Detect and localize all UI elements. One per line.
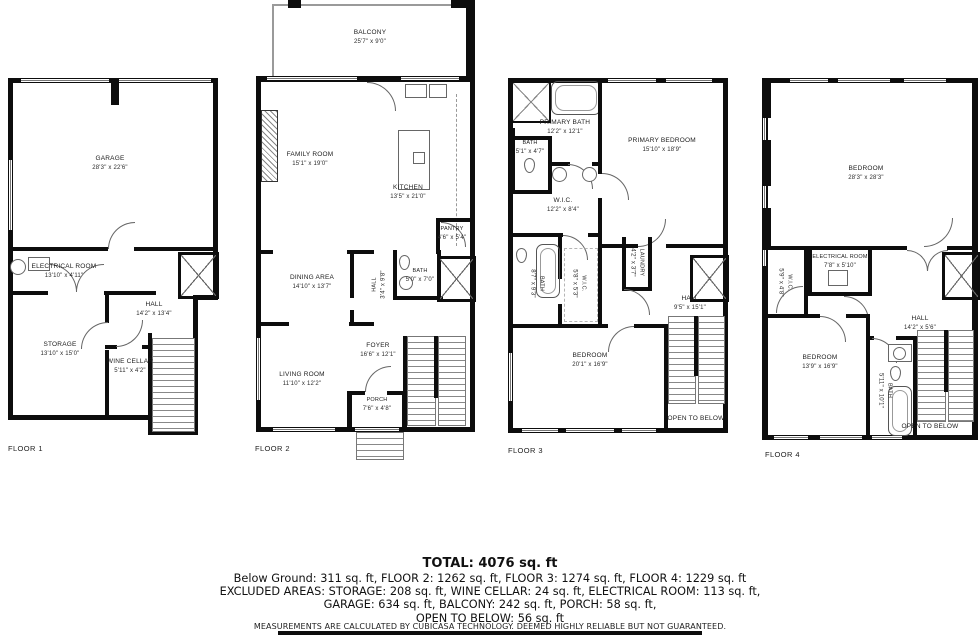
wall <box>762 78 771 118</box>
summary-line: EXCLUDED AREAS: STORAGE: 208 sq. ft, WIN… <box>0 585 980 598</box>
room-dims: 15'1" x 19'0" <box>292 161 328 167</box>
room-name: BALCONY <box>354 29 386 36</box>
kitchen-counter <box>456 94 470 246</box>
equipment-box-icon <box>828 270 848 286</box>
wall <box>598 244 602 328</box>
room-name: FOYER <box>366 342 389 349</box>
stairs-icon <box>698 316 725 404</box>
room-name: HALL <box>911 315 928 322</box>
open-to-below-label: OPEN TO BELOW <box>880 422 980 431</box>
bathtub-icon <box>551 81 601 115</box>
floor1-label: FLOOR 1 <box>8 444 43 453</box>
stairs-icon <box>917 330 946 422</box>
wall <box>466 0 475 78</box>
room-label-primary-bath: PRIMARY BATH12'2" x 12'1" <box>515 118 615 137</box>
wall <box>470 76 475 432</box>
room-dims: 13'10" x 4'11" <box>45 273 84 279</box>
room-name: ELECTRICAL ROOM <box>32 263 97 270</box>
window <box>622 428 656 433</box>
room-dims: 11'10" x 12'2" <box>283 381 322 387</box>
room-dims: 25'7" x 9'0" <box>354 39 386 45</box>
room-name: DINING AREA <box>290 274 334 281</box>
wall <box>808 314 820 318</box>
wall <box>762 140 771 186</box>
room-name: PRIMARY BATH <box>540 119 590 126</box>
disclaimer-text: MEASUREMENTS ARE CALCULATED BY CUBICASA … <box>0 622 980 631</box>
wall <box>134 247 218 251</box>
room-label-electrical-room: ELECTRICAL ROOM13'10" x 4'11" <box>14 262 114 281</box>
room-dims: 4'2" x 3'7" <box>630 248 636 276</box>
room-dims: 5'0" x 7'0" <box>406 277 434 283</box>
room-name: W.I.C. <box>554 197 573 204</box>
room-name: BATH <box>538 276 544 291</box>
wall <box>508 233 563 237</box>
floor2-label: FLOOR 2 <box>255 444 290 453</box>
elevator-icon <box>178 252 219 299</box>
wall <box>762 246 907 250</box>
window <box>608 78 656 83</box>
room-dims: 28'3" x 22'6" <box>92 165 128 171</box>
room-name: PANTRY <box>440 226 463 232</box>
window <box>762 186 768 208</box>
window <box>508 353 513 401</box>
window <box>119 78 211 83</box>
window <box>904 78 946 83</box>
door-icon <box>924 218 953 247</box>
room-dims: 13'10" x 15'0" <box>40 351 79 357</box>
room-name: BEDROOM <box>849 165 884 172</box>
room-dims: 14'2" x 5'6" <box>904 325 936 331</box>
room-name: GARAGE <box>95 155 124 162</box>
stairs-icon <box>438 336 466 426</box>
toilet-icon <box>516 248 527 263</box>
wall <box>393 296 443 300</box>
room-name: HALL <box>681 295 698 302</box>
room-dims: 7'6" x 4'8" <box>363 406 391 412</box>
room-dims: 13'9" x 16'9" <box>802 364 838 370</box>
door-icon <box>820 316 846 342</box>
room-dims: 13'5" x 21'0" <box>390 194 426 200</box>
wall <box>947 246 978 250</box>
window <box>256 338 261 400</box>
wall <box>8 291 48 295</box>
room-label-foyer: FOYER16'6" x 12'1" <box>328 341 428 360</box>
room-name: WINE CELLAR <box>107 358 153 365</box>
fireplace-hatch-icon <box>261 110 278 182</box>
room-label-primary-bedroom: PRIMARY BEDROOM15'10" x 18'9" <box>612 136 712 155</box>
wall <box>634 324 668 328</box>
window <box>401 76 459 82</box>
window <box>820 435 862 440</box>
room-dims: 9'5" x 15'1" <box>674 305 706 311</box>
room-dims: 7'8" x 5'10" <box>824 263 856 269</box>
floor1-panel: GARAGE28'3" x 22'6" ELECTRICAL ROOM13'10… <box>8 78 218 435</box>
door-icon <box>365 366 391 392</box>
room-label-kitchen: KITCHEN13'5" x 21'0" <box>358 183 458 202</box>
wall <box>350 310 354 326</box>
stairs-icon <box>948 330 974 422</box>
sink-icon <box>582 167 597 182</box>
room-label-wic-upper: W.I.C.12'2" x 8'4" <box>513 196 613 215</box>
wall <box>104 291 156 295</box>
window <box>762 118 768 140</box>
bottom-bar <box>278 631 702 635</box>
window <box>838 78 890 83</box>
wall <box>762 208 771 246</box>
room-name: HALL <box>145 301 162 308</box>
room-name: STORAGE <box>43 341 76 348</box>
elevator-icon <box>942 252 980 300</box>
room-label-wic: W.I.C.5'9" x 4'8" <box>776 252 793 312</box>
window <box>522 428 558 433</box>
window <box>273 427 335 432</box>
window <box>267 76 357 82</box>
wall <box>8 415 152 420</box>
room-label-bedroom: BEDROOM20'1" x 16'9" <box>540 351 640 370</box>
room-label-bath: BATH5'11" x 10'1" <box>876 360 893 420</box>
room-name: BEDROOM <box>573 352 608 359</box>
floor4-label: FLOOR 4 <box>765 450 800 459</box>
window <box>21 78 109 83</box>
room-dims: 20'1" x 16'9" <box>572 362 608 368</box>
window <box>774 435 808 440</box>
wall <box>111 78 119 105</box>
room-label-dining-area: DINING AREA14'10" x 13'7" <box>262 273 362 292</box>
door-icon <box>108 222 135 249</box>
room-name: LAUNDRY <box>638 249 644 277</box>
room-label-bath-small: BATH5'1" x 4'7" <box>510 140 550 157</box>
room-label-electrical-room: ELECTRICAL ROOM7'8" x 5'10" <box>790 254 890 271</box>
room-dims: 5'9" x 4'8" <box>778 268 784 296</box>
wall <box>260 250 273 254</box>
fridge-icon <box>429 84 447 98</box>
open-to-below-label: OPEN TO BELOW <box>646 414 746 423</box>
room-label-bedroom-small: BEDROOM13'9" x 16'9" <box>770 353 870 372</box>
room-label-hall: HALL14'2" x 13'4" <box>104 300 204 319</box>
room-name: BATH <box>886 383 892 398</box>
room-dims: 4'6" x 5'4" <box>438 235 466 241</box>
room-label-family-room: FAMILY ROOM15'1" x 19'0" <box>260 150 360 169</box>
room-label-bath: BATH5'0" x 7'0" <box>370 268 470 285</box>
sink-icon <box>552 167 567 182</box>
room-label-wine-cellar: WINE CELLAR5'11" x 4'2" <box>80 357 180 376</box>
toilet-icon <box>524 158 535 173</box>
window <box>8 160 13 230</box>
kitchen-sink-icon <box>413 152 425 164</box>
room-name: W.I.C. <box>786 274 792 290</box>
room-dims: 16'6" x 12'1" <box>360 352 396 358</box>
area-summary: TOTAL: 4076 sq. ft Below Ground: 311 sq.… <box>0 556 980 625</box>
room-dims: 5'11" x 10'1" <box>878 373 884 408</box>
room-dims: 28'3" x 28'3" <box>848 175 884 181</box>
room-name: BEDROOM <box>803 354 838 361</box>
room-label-balcony: BALCONY25'7" x 9'0" <box>320 28 420 47</box>
room-dims: 15'10" x 18'9" <box>642 147 681 153</box>
window <box>790 78 828 83</box>
stairs-icon <box>668 316 696 404</box>
door-icon <box>907 250 928 271</box>
wall <box>622 237 626 291</box>
annotation-text: OPEN TO BELOW <box>902 423 959 430</box>
room-label-pantry: PANTRY4'6" x 5'4" <box>402 226 502 243</box>
room-name: BATH <box>412 268 427 274</box>
floor2-panel: BALCONY25'7" x 9'0" FAMILY ROOM15'1" x 1… <box>255 0 475 462</box>
room-name: FAMILY ROOM <box>287 151 334 158</box>
room-label-hall: HALL14'2" x 5'6" <box>870 314 970 333</box>
wall <box>762 314 808 318</box>
shower-icon <box>511 81 551 123</box>
room-label-living-room: LIVING ROOM11'10" x 12'2" <box>252 370 352 389</box>
door-icon <box>608 326 634 352</box>
room-label-garage: GARAGE28'3" x 22'6" <box>60 154 160 173</box>
room-name: PORCH <box>367 397 388 403</box>
wall <box>648 237 652 291</box>
room-label-wic-lower: W.I.C.5'8" x 5'3" <box>570 253 587 313</box>
room-dims: 5'8" x 5'3" <box>572 269 578 297</box>
wall <box>8 247 108 251</box>
room-label-bedroom-large: BEDROOM28'3" x 28'3" <box>816 164 916 183</box>
room-dims: 12'2" x 12'1" <box>547 129 583 135</box>
summary-line: GARAGE: 634 sq. ft, BALCONY: 242 sq. ft,… <box>0 598 980 611</box>
summary-line: Below Ground: 311 sq. ft, FLOOR 2: 1262 … <box>0 572 980 585</box>
room-dims: 8'7" x 9'3" <box>530 269 536 297</box>
wall <box>588 233 600 237</box>
room-name: PRIMARY BEDROOM <box>628 137 696 144</box>
window <box>666 78 712 83</box>
wall <box>508 324 608 328</box>
room-name: BATH <box>522 140 537 146</box>
room-label-bath-lower: BATH8'7" x 9'3" <box>528 253 545 313</box>
wall <box>256 322 289 326</box>
door-icon <box>116 320 143 347</box>
room-dims: 5'11" x 4'2" <box>114 368 146 374</box>
stove-icon <box>405 84 427 98</box>
wall <box>666 244 723 248</box>
room-dims: 5'1" x 4'7" <box>516 149 544 155</box>
wall <box>288 0 301 8</box>
door-icon <box>367 82 396 111</box>
room-name: ELECTRICAL ROOM <box>812 254 867 260</box>
room-label-porch: PORCH7'6" x 4'8" <box>327 397 427 414</box>
annotation-text: OPEN TO BELOW <box>668 415 725 422</box>
room-dims: 14'10" x 13'7" <box>292 284 331 290</box>
wall <box>808 292 872 296</box>
floor4-panel: BEDROOM28'3" x 28'3" ELECTRICAL ROOM7'8"… <box>762 78 978 445</box>
room-name: KITCHEN <box>393 184 423 191</box>
room-dims: 14'2" x 13'4" <box>136 311 172 317</box>
room-dims: 12'2" x 8'4" <box>547 207 579 213</box>
sink-icon <box>893 347 906 360</box>
room-name: LIVING ROOM <box>279 371 325 378</box>
summary-total: TOTAL: 4076 sq. ft <box>0 556 980 571</box>
floorplan-canvas: GARAGE28'3" x 22'6" ELECTRICAL ROOM13'10… <box>0 0 980 635</box>
porch-steps-icon <box>356 432 404 460</box>
room-label-hall: HALL9'5" x 15'1" <box>640 294 740 313</box>
stairs-icon <box>152 338 195 432</box>
room-label-laundry: LAUNDRY4'2" x 3'7" <box>628 232 645 292</box>
window <box>566 428 614 433</box>
floor3-panel: PRIMARY BATH12'2" x 12'1" BATH5'1" x 4'7… <box>508 78 728 438</box>
floor3-label: FLOOR 3 <box>508 446 543 455</box>
wall <box>508 128 515 194</box>
room-name: W.I.C. <box>580 275 586 291</box>
